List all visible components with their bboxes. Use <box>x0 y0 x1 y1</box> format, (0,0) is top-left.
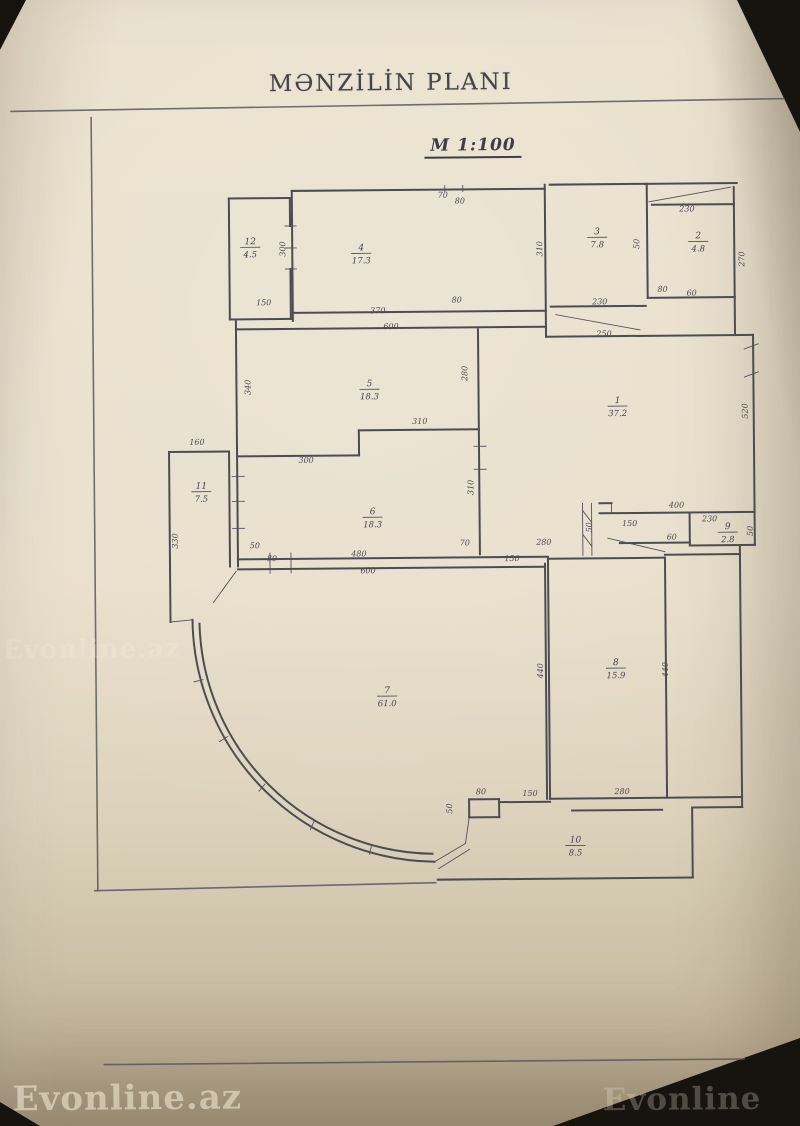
dimension-label: 70 <box>438 191 448 200</box>
wall-detail <box>213 571 236 602</box>
dimension-label: 310 <box>412 417 427 426</box>
wall <box>200 622 433 856</box>
dimension-label: 160 <box>189 438 204 447</box>
room-label: 618.3 <box>363 507 383 530</box>
room-area: 37.2 <box>608 409 627 419</box>
wall <box>665 554 740 555</box>
wall <box>359 429 479 430</box>
room-label: 117.5 <box>191 482 211 505</box>
room-area: 18.3 <box>360 392 379 402</box>
room-number: 11 <box>196 482 208 492</box>
room-area: 4.8 <box>690 244 705 254</box>
room-number: 7 <box>384 686 390 696</box>
room-number: 10 <box>570 835 582 845</box>
room-area: 18.3 <box>363 520 382 530</box>
wall-detail <box>583 510 592 522</box>
wall <box>229 198 230 319</box>
wall <box>438 877 693 879</box>
dimension-label: 80 <box>455 196 465 205</box>
dimension-label: 280 <box>535 538 551 547</box>
dimension-label: 280 <box>460 366 469 382</box>
dimension-label: 50 <box>746 526 755 536</box>
room-label: 24.8 <box>688 231 708 254</box>
wall-detail <box>465 817 469 843</box>
plan-walls-light <box>167 183 763 871</box>
frame-line <box>95 883 436 891</box>
dimension-label: 280 <box>613 787 629 796</box>
wall <box>645 183 737 184</box>
dimension-label: 340 <box>243 380 252 395</box>
wall-detail <box>744 372 758 377</box>
room-label: 815.9 <box>606 658 626 681</box>
wall <box>548 558 665 559</box>
dimension-label: 440 <box>661 662 670 678</box>
wall-detail <box>649 187 731 202</box>
wall-detail <box>434 843 465 861</box>
wall <box>292 191 293 321</box>
room-label: 761.0 <box>377 686 397 709</box>
dimension-label: 60 <box>687 288 697 297</box>
dimension-label: 50 <box>632 239 641 249</box>
room-area: 8.5 <box>569 848 583 858</box>
dimension-label: 600 <box>383 322 398 331</box>
wall <box>548 559 550 799</box>
wall <box>230 319 291 320</box>
wall <box>600 512 755 513</box>
document-content: MƏNZİLİN PLANI M 1:100 70802303101503005… <box>0 0 800 1126</box>
room-area: 2.8 <box>720 535 735 545</box>
wall <box>550 184 645 185</box>
room-number: 4 <box>357 243 364 253</box>
wall <box>753 335 755 545</box>
dimension-label: 150 <box>504 554 519 563</box>
dimension-label: 150 <box>256 298 271 307</box>
wall <box>620 542 690 543</box>
floor-plan-svg: 7080230310150300502708060230250370806003… <box>0 0 800 1126</box>
wall <box>478 329 480 554</box>
dimension-label: 400 <box>668 501 684 510</box>
wall <box>572 810 662 811</box>
dimension-label: 70 <box>460 538 470 547</box>
room-label: 37.8 <box>587 227 607 250</box>
dimension-label: 330 <box>171 533 180 548</box>
dimension-label: 310 <box>535 241 544 256</box>
wall-detail <box>608 538 665 552</box>
room-number: 1 <box>615 396 621 406</box>
dimension-label: 250 <box>595 329 611 338</box>
dimension-label: 300 <box>278 241 287 256</box>
room-number: 6 <box>370 507 376 517</box>
dimension-label: 270 <box>737 251 746 267</box>
room-label: 108.5 <box>565 835 585 858</box>
dimension-label: 300 <box>298 456 313 465</box>
room-number: 3 <box>594 227 600 237</box>
room-number: 5 <box>367 379 373 389</box>
dimension-label: 310 <box>466 480 475 495</box>
room-area: 4.5 <box>243 250 258 260</box>
dimension-label: 230 <box>591 297 607 306</box>
wall <box>692 809 693 877</box>
dimension-label: 440 <box>536 663 545 679</box>
dimension-label: 520 <box>741 403 750 418</box>
wall <box>229 451 230 566</box>
dimension-label: 50 <box>585 522 594 532</box>
wall-detail <box>744 344 758 349</box>
dimension-label: 600 <box>360 566 375 575</box>
room-label: 137.2 <box>608 396 628 419</box>
dimension-label: 80 <box>476 787 486 796</box>
dimension-label: 150 <box>622 519 637 528</box>
photo-of-floor-plan-document: MƏNZİLİN PLANI M 1:100 70802303101503005… <box>0 0 800 1126</box>
wall <box>550 797 742 799</box>
room-label: 124.5 <box>240 237 260 260</box>
wall <box>546 335 753 337</box>
room-area: 15.9 <box>606 671 626 681</box>
wall <box>192 618 434 864</box>
dimension-label: 50 <box>445 803 454 813</box>
wall <box>169 451 229 452</box>
dimension-label: 150 <box>522 789 537 798</box>
wall <box>545 185 546 337</box>
dimension-label: 50 <box>250 541 260 550</box>
wall <box>236 321 238 566</box>
wall <box>238 567 545 570</box>
wall <box>238 557 548 560</box>
dimension-label: 230 <box>678 204 694 213</box>
dimension-label: 80 <box>657 285 667 294</box>
page-frame <box>11 99 792 1066</box>
plan-dimensions: 7080230310150300502708060230250370806003… <box>168 188 757 816</box>
room-number: 12 <box>244 237 256 247</box>
dimension-label: 370 <box>370 306 385 315</box>
dimension-label: 60 <box>667 533 677 542</box>
wall <box>740 545 742 797</box>
wall-detail <box>556 314 640 331</box>
wall <box>293 311 546 313</box>
dimension-label: 80 <box>452 295 462 304</box>
wall-detail <box>439 849 470 868</box>
wall <box>545 564 547 799</box>
wall-detail <box>583 534 592 546</box>
frame-line <box>104 1059 744 1065</box>
room-label: 518.3 <box>359 379 379 402</box>
room-area: 17.3 <box>352 256 371 266</box>
wall <box>647 184 648 298</box>
frame-line <box>11 99 784 112</box>
dimension-label: 480 <box>350 549 366 558</box>
room-number: 2 <box>694 231 701 241</box>
room-number: 9 <box>725 522 731 532</box>
room-area: 7.8 <box>590 240 604 250</box>
dimension-label: 80 <box>267 554 277 563</box>
wall <box>229 198 290 199</box>
frame-line <box>91 118 98 891</box>
dimension-label: 230 <box>701 514 717 523</box>
wall <box>292 189 545 191</box>
room-number: 8 <box>613 658 619 668</box>
room-label: 92.8 <box>718 522 738 545</box>
room-label: 417.3 <box>351 243 371 266</box>
room-area: 61.0 <box>378 699 398 709</box>
room-area: 7.5 <box>195 495 209 505</box>
wall-detail <box>170 620 192 622</box>
